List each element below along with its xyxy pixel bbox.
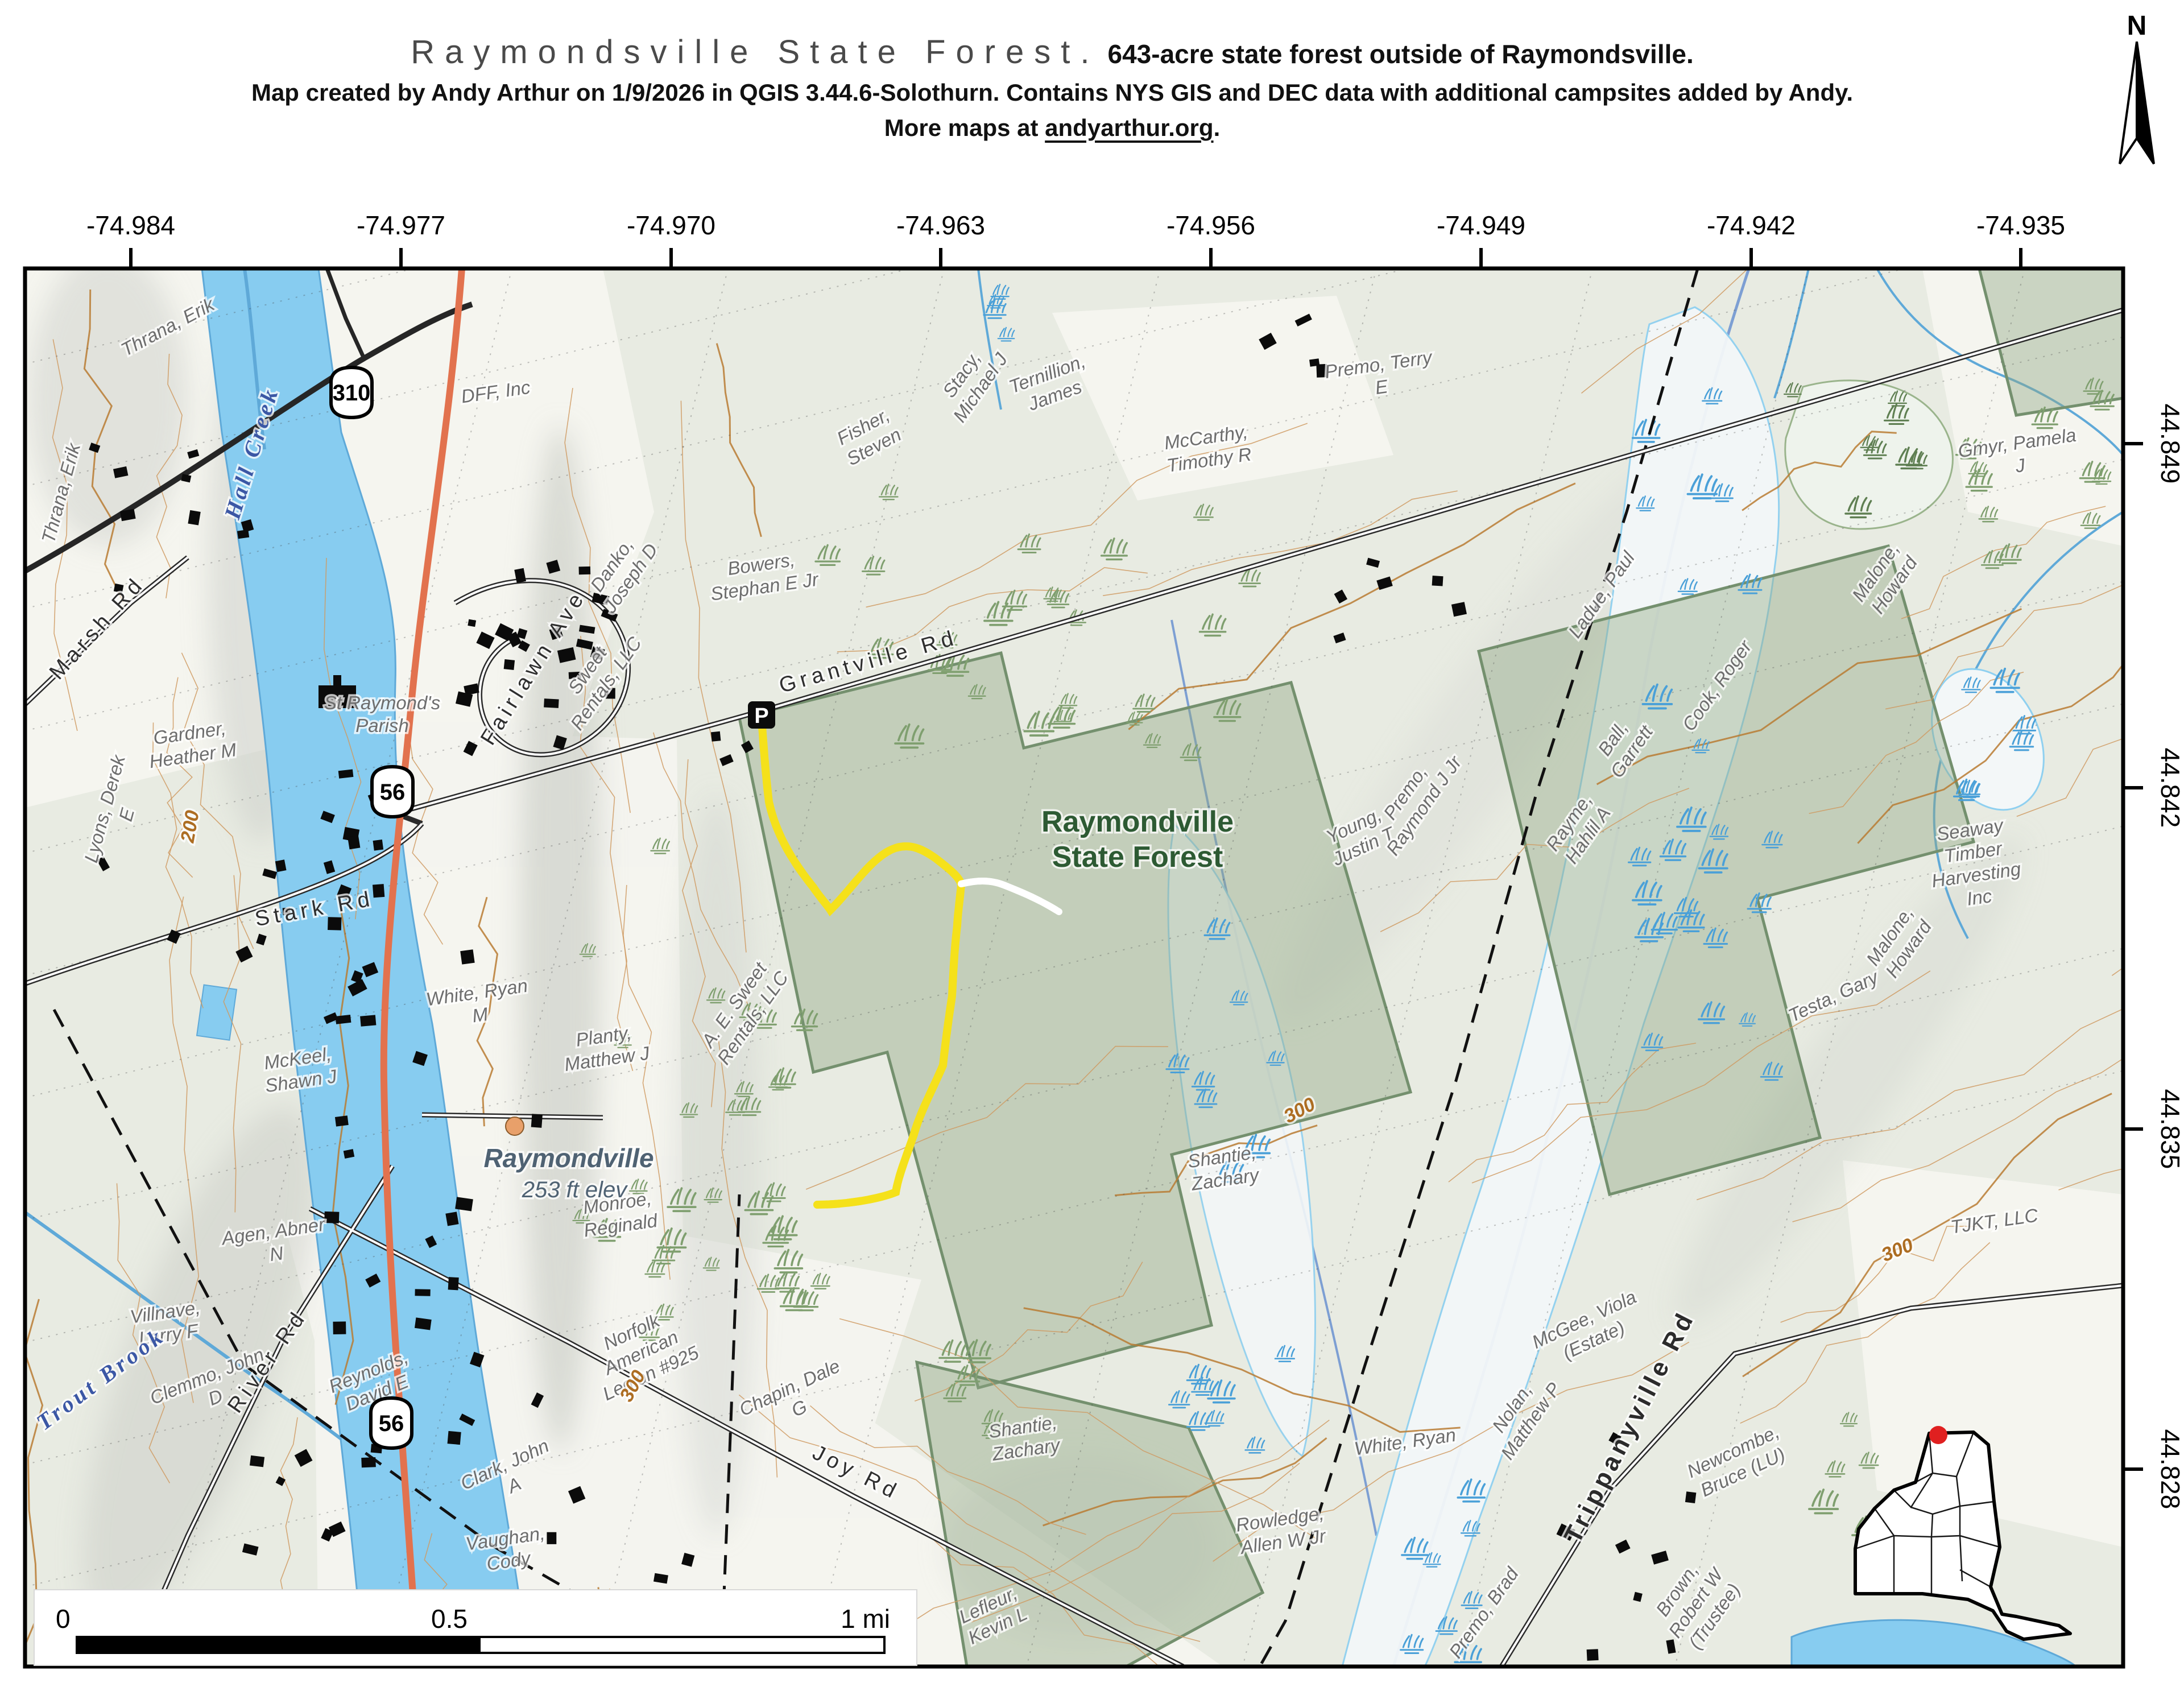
axis-right-label: 44.835 [2156,1089,2184,1169]
elevation-point [506,1117,524,1135]
forest-name-label: Raymondville [1041,805,1234,838]
scale-0: 0 [56,1604,71,1634]
route-shield: 310 [331,367,372,417]
scale-05: 0.5 [431,1604,468,1634]
axis-right: 44.84944.84244.83544.828 [2123,404,2184,1510]
town-elev-label: 253 ft elev [522,1177,628,1202]
location-dot [1929,1426,1947,1444]
route-shield: 56 [372,767,413,817]
axis-top-label: -74.977 [357,210,445,240]
axis-right-label: 44.842 [2156,748,2184,828]
axis-right-label: 44.828 [2156,1429,2184,1510]
town-label: Raymondville [483,1143,653,1173]
axis-top: -74.984-74.977-74.970-74.963-74.956-74.9… [86,210,2065,268]
axis-top-label: -74.963 [896,210,985,240]
axis-top-label: -74.970 [627,210,715,240]
axis-right-label: 44.849 [2156,404,2184,484]
parking-label: P [754,704,768,728]
forest-name-label2: State Forest [1052,841,1223,874]
axis-top-label: -74.935 [1976,210,2065,240]
pond [197,985,237,1040]
map-interior: P [13,0,2184,1687]
parking-marker: P [748,701,775,729]
route-shield: 56 [371,1398,412,1448]
axis-top-label: -74.949 [1437,210,1525,240]
map-canvas: P [0,0,2184,1687]
scale-bar: 0 0.5 1 mi [34,1590,917,1665]
axis-top-label: -74.956 [1167,210,1255,240]
route-shield-number: 56 [380,780,406,805]
route-shield-number: 310 [333,381,371,406]
map-sheet: Raymondsville State Forest.643-acre stat… [0,0,2184,1687]
axis-top-label: -74.942 [1707,210,1796,240]
axis-top-label: -74.984 [86,210,175,240]
route-shield-number: 56 [379,1411,404,1436]
scale-1mi: 1 mi [841,1604,890,1634]
